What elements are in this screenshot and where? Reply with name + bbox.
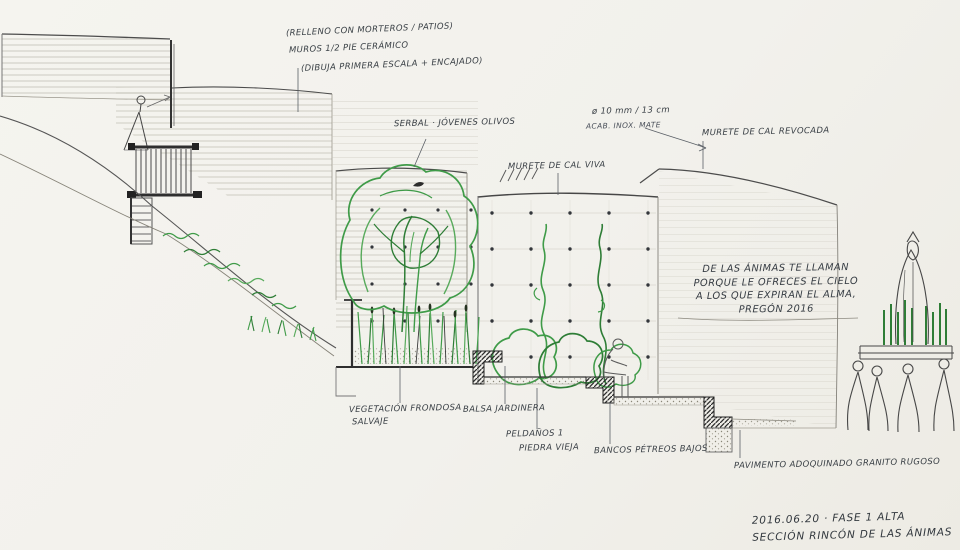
title-block: 2016.06.20 · FASE 1 ALTA SECCIÓN RINCÓN … <box>752 507 953 547</box>
slope-vegetation-sketch <box>163 234 316 342</box>
label-wall-center: MURETE DE CAL VIVA <box>508 161 606 173</box>
sketch-page: (RELLENO CON MORTEROS / PATIOS) MUROS 1/… <box>0 0 960 550</box>
bearers-sketch <box>847 359 954 432</box>
quote-line4: PREGÓN 2016 <box>681 301 871 317</box>
label-railing-spec: ø 10 mm / 13 cm <box>592 106 670 117</box>
candles-sketch <box>884 300 946 345</box>
label-railing-finish: ACAB. INOX. MATE <box>586 121 661 131</box>
paso-platform-sketch <box>858 346 954 359</box>
quote-line3: A LOS QUE EXPIRAN EL ALMA, <box>681 288 871 304</box>
label-steps-line1: PELDAÑOS 1 <box>506 429 564 440</box>
label-planter: BALSA JARDINERA <box>463 404 545 415</box>
label-steps-line2: PIEDRA VIEJA <box>519 443 579 454</box>
pregon-quote: DE LAS ÁNIMAS TE LLAMAN PORQUE LE OFRECE… <box>681 261 872 318</box>
label-vegetation-line2: SALVAJE <box>352 418 389 429</box>
